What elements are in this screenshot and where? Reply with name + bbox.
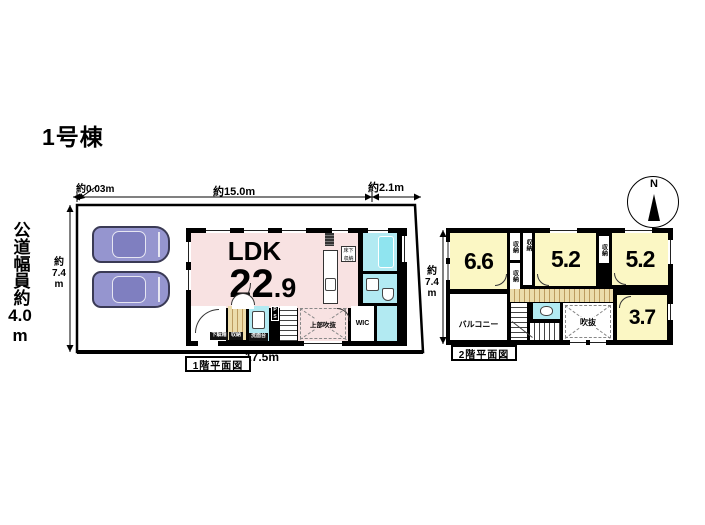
arrowhead bbox=[67, 205, 74, 212]
window bbox=[402, 236, 407, 262]
dim-top-main: 約15.0m bbox=[213, 183, 255, 199]
compass: N bbox=[627, 176, 679, 228]
closet: 収納 bbox=[510, 233, 520, 260]
window bbox=[282, 228, 306, 233]
balcony-label: バルコニー bbox=[450, 319, 507, 330]
window bbox=[186, 242, 191, 262]
floor2-caption: 2階平面図 bbox=[451, 345, 517, 361]
door-arc bbox=[337, 308, 350, 321]
window bbox=[668, 304, 673, 320]
closet-label: 収納 bbox=[524, 239, 533, 251]
void-area: 吹抜 bbox=[563, 303, 613, 340]
dim-top-offset: 約0.03m bbox=[76, 180, 114, 195]
ldk-size-label: 22.9 bbox=[191, 262, 335, 307]
road-width-text: 公道幅員約 bbox=[8, 221, 33, 306]
car bbox=[92, 271, 170, 308]
room-ldk: LDK 22.9 床下収納 bbox=[191, 233, 358, 308]
room-wic: WIC bbox=[351, 306, 374, 341]
car-body bbox=[92, 226, 170, 263]
north-label: N bbox=[628, 178, 680, 190]
bathtub-icon bbox=[378, 236, 394, 268]
car-windshield-line bbox=[158, 277, 160, 302]
pipe-space-label: PS bbox=[271, 306, 279, 321]
kitchen-sink bbox=[325, 278, 336, 291]
room-size-label: 6.6 bbox=[464, 248, 493, 275]
car-body bbox=[92, 271, 170, 308]
shoe-cabinet-label: 下駄箱 bbox=[210, 332, 228, 340]
room-size-label: 3.7 bbox=[629, 306, 655, 330]
window bbox=[570, 340, 586, 345]
window bbox=[625, 228, 652, 233]
toilet-icon bbox=[540, 306, 553, 316]
room-toilet bbox=[533, 303, 560, 319]
corridor bbox=[510, 289, 613, 302]
window bbox=[206, 228, 230, 233]
dim-top-right: 約2.1m bbox=[368, 179, 404, 195]
sink-icon bbox=[366, 278, 379, 291]
front-door-opening bbox=[198, 341, 218, 346]
window bbox=[446, 264, 450, 280]
window bbox=[590, 340, 606, 345]
room-corridor-wet bbox=[377, 306, 397, 341]
car-cabin bbox=[112, 231, 146, 258]
wic-label: WIC bbox=[356, 320, 370, 327]
road-width-value: 4.0 bbox=[8, 306, 32, 326]
stairs-floor1 bbox=[280, 306, 297, 341]
page-title: 1号棟 bbox=[42, 118, 104, 152]
room-size-label: 5.2 bbox=[551, 246, 580, 273]
closet: 収納 bbox=[523, 233, 532, 285]
room-washroom bbox=[363, 274, 397, 303]
closet-label: 収納 bbox=[511, 270, 520, 282]
vanity-fixture-icon bbox=[252, 311, 265, 329]
floorplan-page: 1号棟 公道幅員約 4.0 m 約0.03m 約15.0m 約2.1m 約 7.… bbox=[0, 0, 705, 525]
car bbox=[92, 226, 170, 263]
window bbox=[668, 240, 673, 264]
closet: 収納 bbox=[599, 236, 609, 263]
toilet-icon bbox=[382, 288, 394, 301]
balcony: バルコニー bbox=[450, 294, 507, 340]
vanity-label: 洗面台 bbox=[249, 333, 268, 341]
window bbox=[446, 242, 450, 258]
arrowhead bbox=[414, 194, 421, 201]
door-opening bbox=[232, 305, 254, 309]
closet-label: 収納 bbox=[600, 244, 609, 256]
closet: 収納 bbox=[510, 263, 520, 289]
window bbox=[550, 228, 577, 233]
room-size-label: 5.2 bbox=[626, 246, 655, 273]
void-label: 吹抜 bbox=[572, 317, 604, 328]
window bbox=[304, 341, 342, 346]
floor-storage-label: 床下収納 bbox=[341, 246, 356, 262]
dim-right-74: 約 7.4 m bbox=[421, 262, 443, 299]
kitchen-island bbox=[323, 250, 338, 304]
car-windshield-line bbox=[158, 232, 160, 257]
window bbox=[332, 228, 348, 233]
arrowhead bbox=[67, 345, 74, 352]
window bbox=[186, 270, 191, 290]
stairs-floor2-winder bbox=[530, 323, 560, 340]
window bbox=[368, 228, 388, 233]
floor1-building: LDK 22.9 床下収納 PS 上部吹抜 bbox=[186, 228, 407, 346]
floor1-caption: 1階平面図 bbox=[185, 356, 251, 372]
closet-label: 収納 bbox=[511, 241, 520, 253]
floor2-building: 6.6 収納 収納 収納 5.2 収納 5.2 バルコニー bbox=[446, 228, 673, 345]
room-bathroom bbox=[363, 233, 397, 271]
ldk-size-dec: .9 bbox=[274, 273, 297, 303]
window bbox=[244, 228, 268, 233]
entrance-door-arc bbox=[195, 309, 219, 333]
stove-icon bbox=[325, 233, 334, 246]
dim-left-74: 約 7.4 m bbox=[48, 253, 70, 290]
road-width-label: 公道幅員約 4.0 m bbox=[6, 221, 34, 346]
car-cabin bbox=[112, 276, 146, 303]
storage-label: 収納 bbox=[229, 332, 243, 340]
road-width-unit: m bbox=[12, 326, 27, 346]
north-arrow-icon bbox=[648, 194, 660, 221]
